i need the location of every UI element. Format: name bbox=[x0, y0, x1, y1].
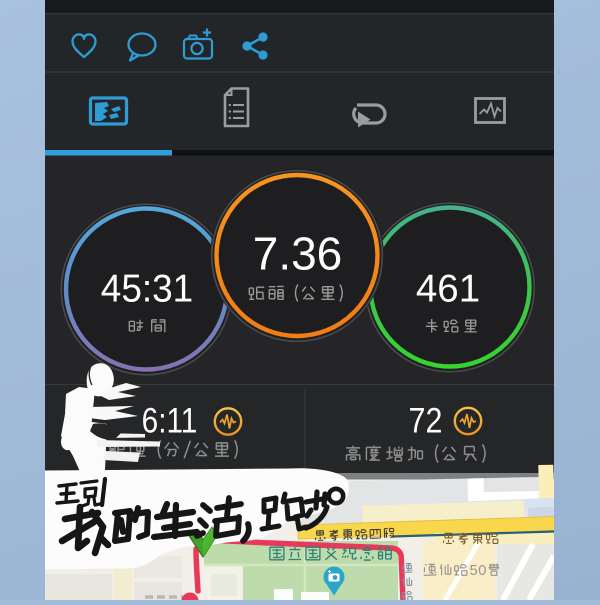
svg-text:72: 72 bbox=[409, 400, 443, 439]
svg-text:7.36: 7.36 bbox=[253, 228, 343, 280]
svg-text:45:31: 45:31 bbox=[101, 267, 193, 310]
svg-text:461: 461 bbox=[416, 268, 480, 311]
svg-text:5: 5 bbox=[470, 563, 478, 579]
svg-text:6:11: 6:11 bbox=[142, 401, 198, 440]
svg-text:0: 0 bbox=[478, 563, 486, 579]
